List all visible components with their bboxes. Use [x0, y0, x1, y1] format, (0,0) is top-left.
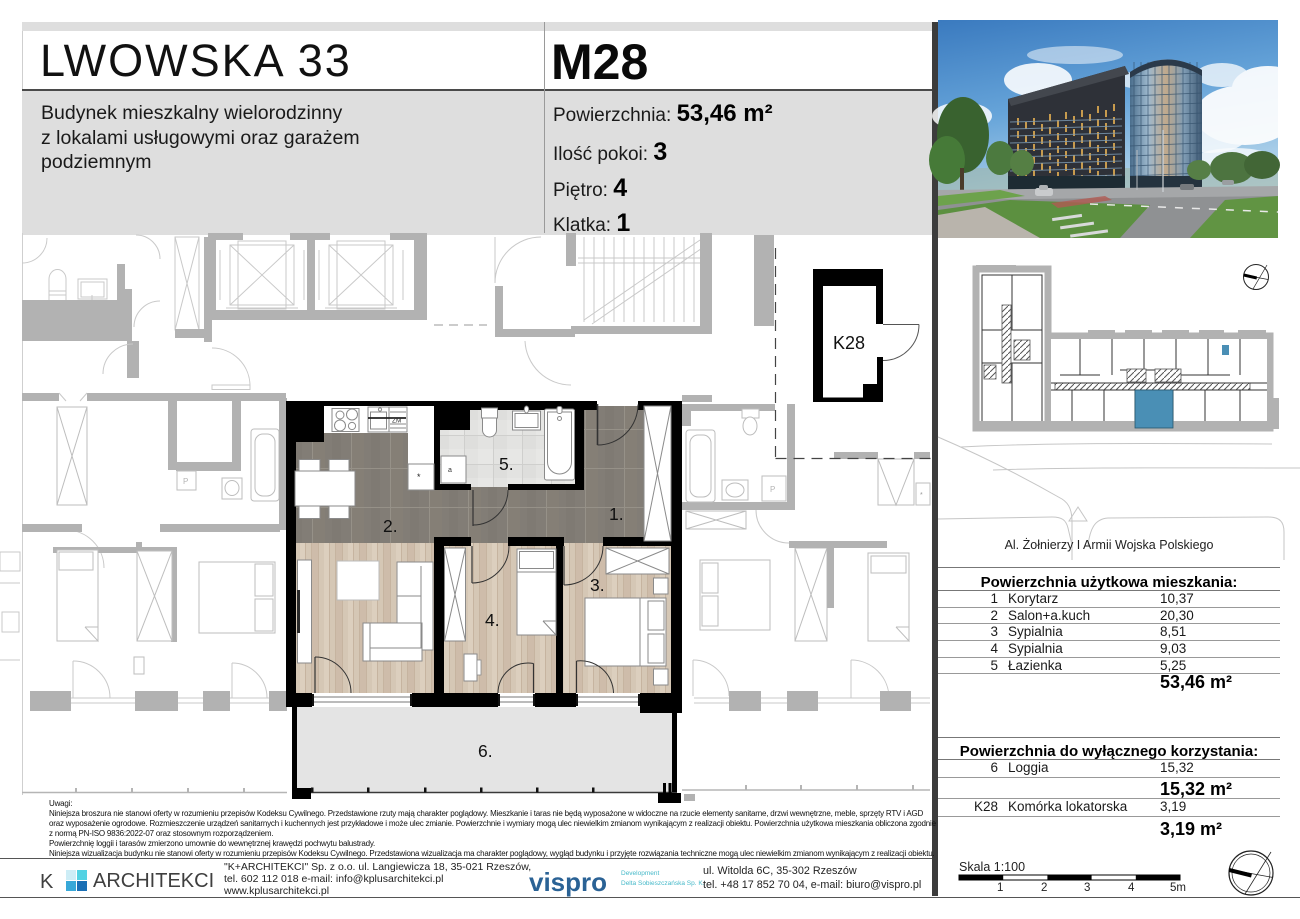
svg-text:3.: 3. — [590, 575, 605, 595]
svg-text:1.: 1. — [609, 504, 624, 524]
svg-text:6.: 6. — [478, 741, 493, 761]
svg-text:P: P — [770, 485, 775, 494]
svg-text:*: * — [417, 472, 421, 482]
svg-text:K28: K28 — [833, 333, 865, 353]
svg-text:a: a — [448, 467, 452, 474]
svg-text:5.: 5. — [499, 454, 514, 474]
svg-text:ZM: ZM — [392, 418, 401, 425]
svg-text:4.: 4. — [485, 610, 500, 630]
svg-text:2.: 2. — [383, 516, 398, 536]
svg-text:*: * — [920, 492, 923, 499]
svg-text:P: P — [183, 477, 188, 486]
